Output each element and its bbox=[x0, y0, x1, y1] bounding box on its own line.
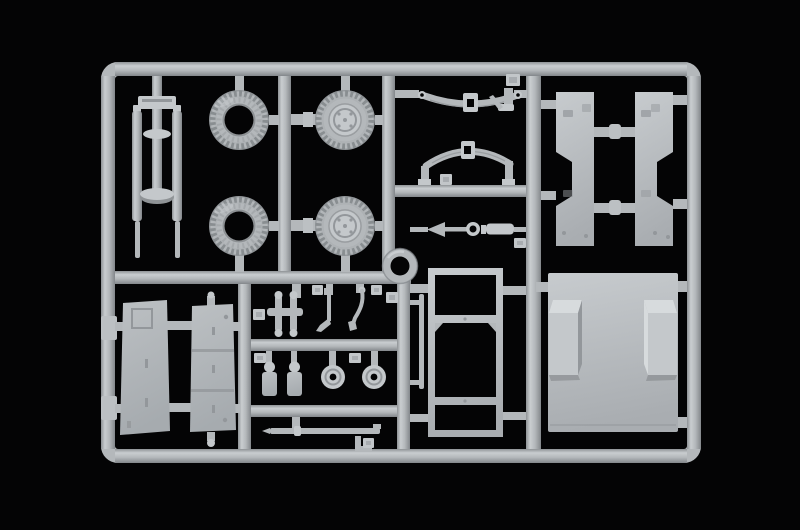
sprue-gate bbox=[303, 112, 313, 127]
rail-clamp-block bbox=[101, 316, 117, 340]
runner-vertical bbox=[382, 76, 395, 278]
sprue-gate bbox=[541, 191, 556, 200]
sprue-gate bbox=[168, 403, 192, 412]
runner-horizontal bbox=[251, 339, 397, 351]
wheel-arch-box-left bbox=[549, 300, 582, 381]
part-door-panel bbox=[120, 300, 170, 435]
runner-vertical bbox=[238, 284, 251, 449]
frame-bottom-rail bbox=[115, 449, 687, 463]
runner-vertical-main bbox=[526, 76, 541, 449]
sprue-gate bbox=[410, 414, 428, 422]
sprue-gate bbox=[410, 380, 419, 385]
sprue-gate bbox=[609, 200, 621, 215]
lug-nut bbox=[349, 218, 352, 221]
lug-nut bbox=[337, 124, 340, 127]
sprue-gate bbox=[673, 199, 687, 209]
sprue-gate bbox=[375, 115, 383, 125]
sprue-gate bbox=[269, 221, 279, 231]
number-tag bbox=[386, 292, 398, 303]
panel-emboss bbox=[651, 104, 660, 112]
sprue-gate bbox=[167, 321, 192, 330]
door-handle-mark bbox=[145, 359, 148, 368]
lug-nut bbox=[337, 218, 340, 221]
rivet bbox=[463, 399, 466, 402]
sprue-gate bbox=[341, 76, 350, 91]
wheel-arch-box-right bbox=[644, 300, 677, 381]
runner-vertical bbox=[397, 271, 410, 449]
number-tag bbox=[514, 238, 526, 248]
frame-top-rail bbox=[115, 62, 687, 76]
sprue-gate bbox=[235, 76, 244, 91]
panel-seam bbox=[192, 349, 234, 352]
part-floor-panel bbox=[548, 273, 678, 432]
sprue-gate bbox=[678, 417, 687, 428]
number-tag bbox=[363, 438, 374, 448]
support-tip bbox=[175, 221, 180, 258]
number-tag bbox=[253, 309, 265, 320]
panel-emboss bbox=[563, 190, 573, 197]
sprue-gate bbox=[341, 255, 350, 272]
sprue-gate bbox=[375, 221, 383, 231]
part-road-tire-1 bbox=[209, 90, 269, 150]
support-tube bbox=[132, 111, 142, 221]
runner-vertical bbox=[278, 76, 291, 278]
photo-stage bbox=[0, 0, 800, 530]
rail-clamp-block bbox=[101, 396, 117, 420]
sprue-gate bbox=[503, 412, 526, 420]
part-wheel-with-hub-1 bbox=[315, 90, 375, 150]
panel-seam bbox=[550, 424, 676, 426]
lug-nut bbox=[349, 230, 352, 233]
number-tag bbox=[506, 74, 520, 86]
sprue-gate bbox=[541, 100, 556, 109]
panel-seam bbox=[191, 389, 234, 392]
lug-nut bbox=[349, 112, 352, 115]
rivet bbox=[666, 235, 670, 239]
number-tag bbox=[349, 353, 361, 363]
frame-right-rail bbox=[687, 76, 701, 449]
part-wheel-with-hub-2 bbox=[315, 196, 375, 256]
number-tag bbox=[254, 353, 266, 363]
pedal-pad bbox=[262, 372, 277, 396]
rivet bbox=[584, 234, 588, 238]
tire-bore bbox=[225, 212, 254, 241]
number-tag bbox=[440, 174, 452, 185]
rivet bbox=[224, 315, 228, 319]
sprue-gate bbox=[410, 284, 428, 293]
support-tube bbox=[172, 111, 182, 221]
number-tag bbox=[312, 285, 323, 295]
lug-nut bbox=[349, 124, 352, 127]
sprue-photo bbox=[0, 0, 800, 530]
number-tag bbox=[371, 285, 382, 295]
sprue-gate bbox=[269, 115, 279, 125]
rivet bbox=[463, 317, 466, 320]
tire-bore bbox=[225, 106, 254, 135]
rivet bbox=[653, 231, 657, 235]
rivet bbox=[562, 231, 566, 235]
panel-emboss bbox=[582, 104, 591, 112]
panel-emboss bbox=[641, 110, 651, 117]
panel-emboss bbox=[641, 190, 651, 197]
door-handle-mark bbox=[145, 398, 148, 407]
lug-nut bbox=[337, 230, 340, 233]
rivet bbox=[223, 418, 227, 422]
part-tailgate-panel bbox=[190, 292, 236, 448]
sprue-gate bbox=[410, 300, 419, 305]
support-tip bbox=[135, 221, 140, 258]
runner-horizontal-mid bbox=[115, 271, 411, 284]
sprue-gate bbox=[609, 124, 621, 139]
runner-horizontal bbox=[395, 185, 526, 197]
panel-emboss bbox=[563, 110, 573, 117]
lug-nut bbox=[337, 112, 340, 115]
sprue-gate bbox=[536, 282, 548, 292]
sprue-gate bbox=[673, 95, 687, 105]
sprue-gate bbox=[303, 218, 313, 233]
tie-rod-sleeve bbox=[486, 224, 514, 235]
part-thin-rod bbox=[419, 294, 424, 389]
sprue-gate bbox=[503, 286, 526, 295]
pedal-pad bbox=[287, 372, 302, 396]
part-road-tire-2 bbox=[209, 196, 269, 256]
sprue-gate bbox=[678, 281, 687, 292]
runner-horizontal bbox=[251, 405, 397, 417]
part-steering-ring bbox=[383, 249, 418, 284]
sprue-gate bbox=[235, 255, 244, 272]
frame-left-rail bbox=[101, 76, 115, 449]
sprue-gate bbox=[395, 90, 419, 98]
